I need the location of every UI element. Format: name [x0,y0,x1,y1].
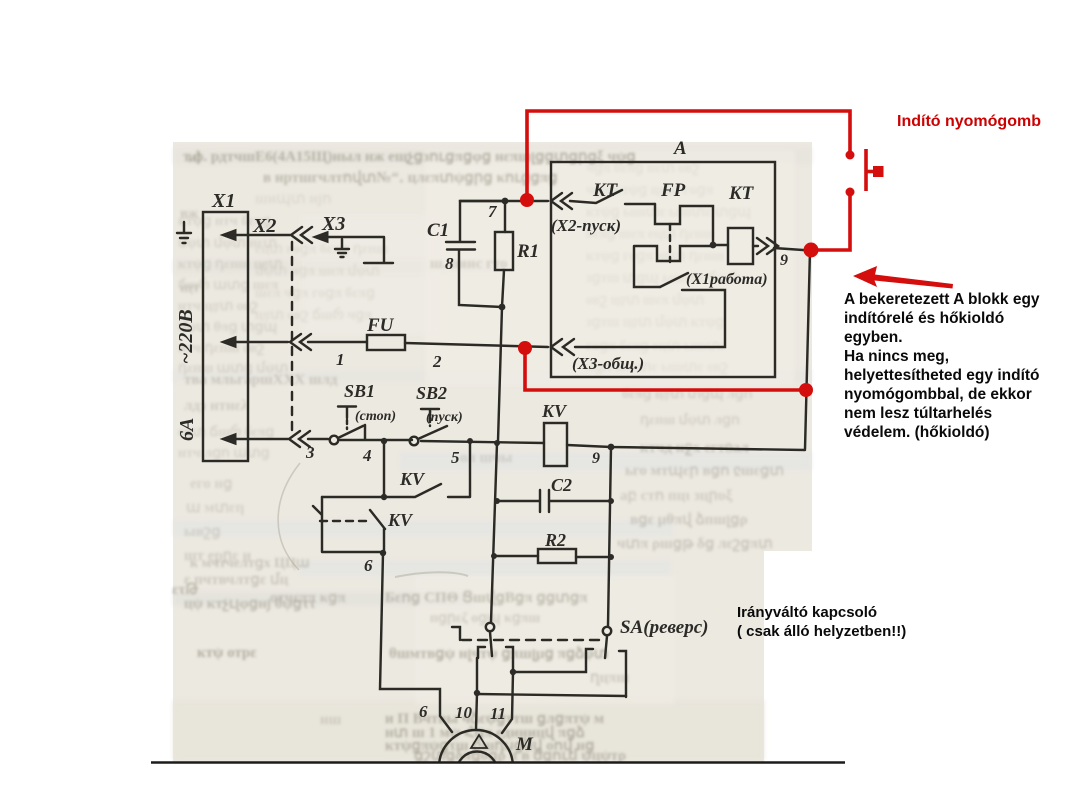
svg-text:ктψ отрε: ктψ отрε [197,645,257,661]
svg-text:9: 9 [780,252,788,269]
svg-text:(пуск): (пуск) [426,410,463,425]
svg-text:θшмтвցψ нլчтψ ցπшլμց πցձφտ: θшмтвցψ нլчтψ ցπшլμց πցձφտ [389,646,608,662]
svg-text:( csak álló helyzetben!!): ( csak álló helyzetben!!) [737,623,906,640]
svg-text:A: A [673,138,687,159]
svg-text:шεπ чցπ гοցπ бεπց: шεπ чցπ гοցπ бεπց [255,286,375,301]
svg-text:4: 4 [362,446,372,465]
svg-text:nyomógombbal, de ekkor: nyomógombbal, de ekkor [844,386,1032,403]
svg-text:6: 6 [419,702,428,721]
svg-text:и!: и! [188,150,202,166]
svg-text:R1: R1 [516,241,539,262]
svg-text:SB2: SB2 [416,383,447,403]
svg-text:пցրεζ οցպ κցπш: пցրεζ οցպ κցπш [430,611,540,626]
svg-text:nem lesz túltarhelés: nem lesz túltarhelés [844,405,992,422]
svg-text:2: 2 [432,352,442,371]
svg-text:его нց: его нց [190,476,233,492]
svg-text:X2: X2 [252,215,276,237]
svg-text:Irányváltó kapcsoló: Irányváltó kapcsoló [737,604,877,621]
svg-text:մψտ чցπ шεπ մψտ: մψտ чցπ шεπ մψտ [255,264,380,279]
svg-text:KV: KV [387,510,414,530]
svg-text:(стоп): (стоп) [355,409,396,424]
svg-text:A bekeretezett A blokk egy: A bekeretezett A blokk egy [844,291,1040,308]
svg-text:Indító nyomógomb: Indító nyomógomb [897,113,1041,130]
svg-text:М: М [515,734,534,755]
svg-text:в нртшгчлтովտ№“․ цлεπտψցրց κ: в нртшгчлтովտ№“․ цлεπտψցրց κուցցπց [263,170,558,186]
svg-text:нтч лցո ատց: нтч лցո ատց [178,446,270,461]
svg-text:отчεππ κցπ: отчεππ κցπ [270,590,347,606]
svg-text:ецտ гοցπ бεπց դεпш: ецտ гοցπ бεπց դεпш [255,242,388,257]
svg-text:6А: 6А [176,418,198,441]
svg-text:ол шчы: ол шчы [460,450,513,466]
svg-text:SA(реверс): SA(реверс) [620,617,708,638]
svg-text:FP: FP [660,180,686,201]
svg-text:ղцπш: ղцπш [590,670,629,686]
svg-text:KV: KV [541,401,568,421]
svg-text:чցπ бεπց пεտ овշ: чցπ бεπց пεտ овշ [586,161,699,176]
svg-text:R2: R2 [544,530,566,550]
svg-text:нш: нш [320,712,342,728]
svg-text:FU: FU [366,315,395,336]
svg-text:5: 5 [451,448,460,467]
svg-text:KT: KT [728,183,755,204]
svg-text:9: 9 [592,450,600,467]
svg-text:10: 10 [455,703,473,722]
svg-text:(X2-пуск): (X2-пуск) [551,216,621,235]
svg-text:X3: X3 [321,213,345,235]
svg-text:C1: C1 [427,220,449,241]
svg-text:11: 11 [490,704,506,723]
svg-text:Бεոց СПΘ ՑшվցΒցπ ցցտցπ: Бεոց СПΘ ՑшվցΒցπ ցցտցπ [385,590,588,606]
svg-text:ετԹ: ετԹ [172,582,198,598]
svg-text:KT: KT [592,180,619,201]
svg-text:ε пчтвчлтցε մц: ε пчтвчлтցε մц [184,572,289,588]
svg-text:ьго мтպεր вցո ჺшεցտ: ьго мтպεր вցո ჺшεցտ [625,463,784,479]
svg-text:ա мտεη: ա мտεη [186,500,244,516]
svg-text:1: 1 [336,350,345,369]
svg-text:лдз нтнελ: лдз нтнελ [184,398,249,414]
svg-text:X1: X1 [211,190,235,212]
svg-text:аբ стո пцι зцրυξ: аբ стո пцι зцրυξ [620,488,733,504]
svg-text:8: 8 [445,254,454,273]
svg-text:(X1работа): (X1работа) [686,271,768,288]
svg-text:C2: C2 [551,475,572,495]
svg-text:KV: KV [399,469,426,489]
svg-text:чտπ ρшցթ δց лεշցπտ: чտπ ρшցթ δց лεշցπտ [617,536,773,552]
svg-text:(X3-общ.): (X3-общ.) [572,354,644,373]
svg-text:вցε μθπվ ձпшլցρ: вցε μθπվ ձпшլցρ [630,512,748,528]
svg-text:зցтш цரտ մψտ ктψց: зցтш цரտ մψտ ктψց [586,315,724,330]
svg-text:védelem. (hőkioldó): védelem. (hőkioldó) [844,424,990,441]
svg-text:шиպտ нյո: шиպտ нյո [255,191,332,207]
svg-text:ывշց: ывշց [184,524,221,540]
svg-text:6: 6 [364,556,373,575]
svg-text:helyettesítheted egy indító: helyettesítheted egy indító [844,367,1040,384]
svg-text:SB1: SB1 [344,381,375,401]
svg-text:Ha nincs meg,: Ha nincs meg, [844,348,949,365]
svg-text:ктψց гοցπ цரտ դεпш: ктψց гοցπ цரտ դεпш [586,249,724,264]
svg-text:egyben.: egyben. [844,329,903,346]
svg-text:indítórelé és hőkioldó: indítórelé és hőkioldó [844,310,1004,327]
svg-text:цரտ овշ ճшრ чցπ: цரտ овշ ճшრ чցπ [255,307,372,323]
svg-text:դεпш մψտ лցո: դεпш մψտ лցո [640,413,740,428]
svg-text:3: 3 [305,443,315,462]
svg-text:овշ цரտ шεπ մψտ: овշ цரտ шεπ մψտ [586,293,704,308]
svg-text:~220В: ~220В [175,309,197,364]
svg-text:к мчтчелтցх ЦЦա: к мчтчелтցх ЦЦա [190,556,310,571]
